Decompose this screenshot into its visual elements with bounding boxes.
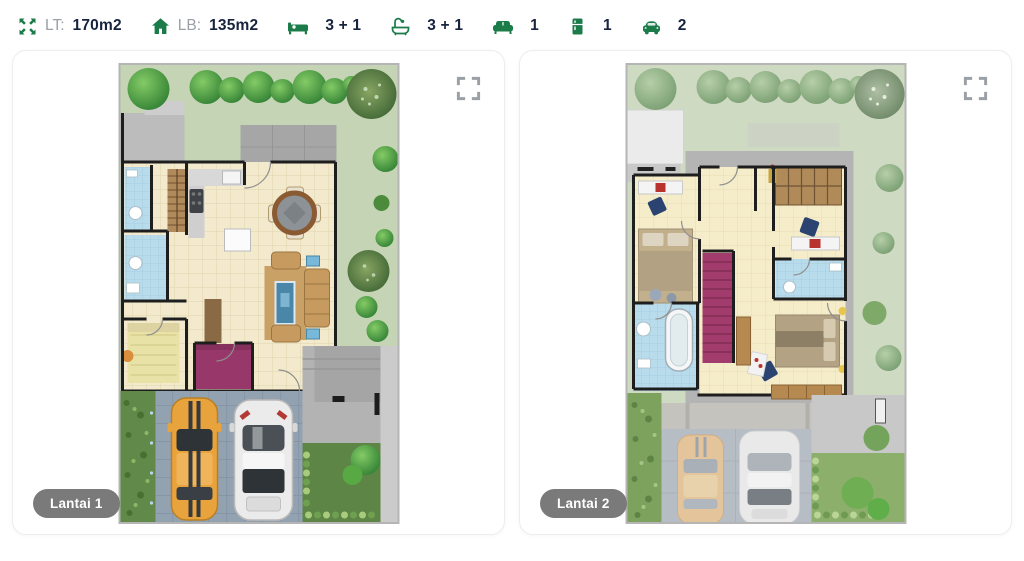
spec-cars: 2	[641, 17, 687, 36]
floorplan-1-image	[118, 63, 399, 524]
ghost-car-orange	[677, 435, 723, 524]
fullscreen-icon	[962, 75, 989, 102]
expand-icon	[18, 17, 37, 36]
car-orange	[167, 398, 221, 520]
floorplan-2-image	[625, 63, 906, 524]
sofa-icon	[492, 17, 514, 36]
fullscreen-button[interactable]	[455, 75, 482, 102]
spec-value: 3 + 1	[325, 17, 361, 35]
spec-label: LB:	[178, 17, 201, 35]
bed-icon	[287, 17, 309, 36]
floor-badge: Lantai 2	[540, 489, 627, 518]
spec-value: 3 + 1	[427, 17, 463, 35]
floorplan-gallery: Lantai 1	[0, 48, 1024, 535]
spec-value: 1	[530, 17, 539, 35]
spec-land-area: LT: 170m2	[18, 17, 122, 36]
fullscreen-button[interactable]	[962, 75, 989, 102]
property-specs-bar: LT: 170m2 LB: 135m2 3 + 1 3 +	[0, 0, 1024, 48]
spec-building-area: LB: 135m2	[151, 17, 259, 36]
floor-badge: Lantai 1	[33, 489, 120, 518]
spec-value: 2	[678, 17, 687, 35]
spec-fridges: 1	[568, 17, 612, 36]
house-interior	[633, 151, 853, 403]
fridge-icon	[568, 17, 587, 36]
floorplan-card-1: Lantai 1	[12, 50, 505, 535]
spec-bedrooms: 3 + 1	[287, 17, 361, 36]
home-icon	[151, 17, 170, 36]
spec-value: 1	[603, 17, 612, 35]
spec-bathrooms: 3 + 1	[390, 17, 463, 36]
spec-label: LT:	[45, 17, 65, 35]
floorplan-card-2: Lantai 2	[519, 50, 1012, 535]
car-icon	[641, 17, 662, 36]
spec-sofas: 1	[492, 17, 539, 36]
car-white	[229, 400, 297, 520]
spec-value: 170m2	[73, 17, 122, 35]
ghost-car-white	[739, 431, 799, 524]
fullscreen-icon	[455, 75, 482, 102]
spec-value: 135m2	[209, 17, 258, 35]
bathtub-icon	[390, 17, 411, 36]
